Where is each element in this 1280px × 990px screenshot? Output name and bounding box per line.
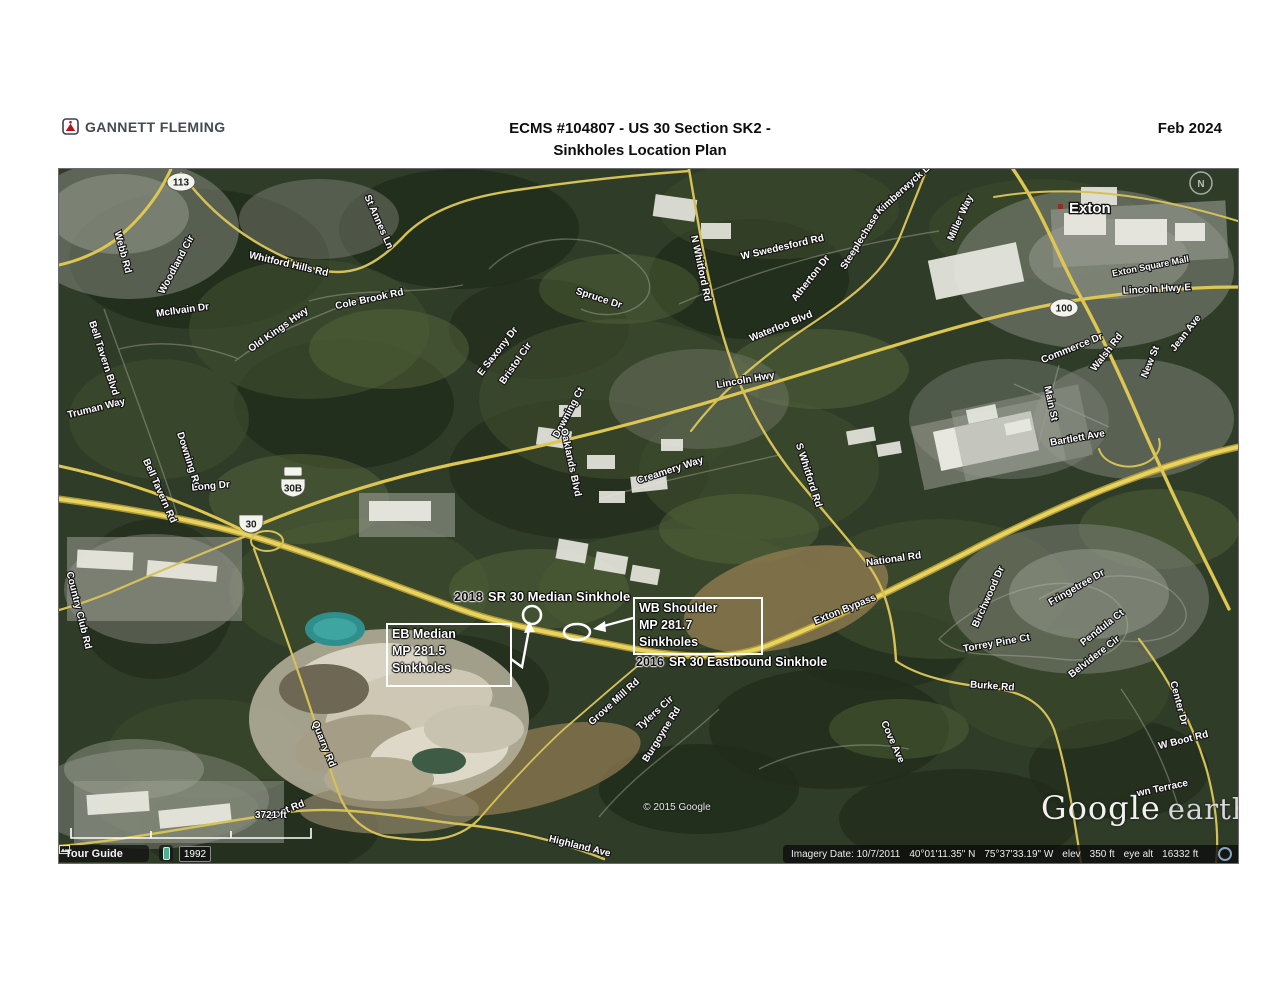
wb-box-line1: WB Shoulder [639,600,757,617]
logo-text: GANNETT FLEMING [85,119,226,135]
scale-label: 3721 ft [255,810,287,821]
page-title-line1: ECMS #104807 - US 30 Section SK2 - [340,118,940,140]
eb-median-callout-box: EB Median MP 281.5 Sinkholes [386,623,512,687]
tour-guide-button[interactable]: Tour Guide [59,845,149,862]
watermark-earth: earth [1168,792,1239,826]
gannett-fleming-logo-icon [62,118,79,135]
median-sinkhole-text: SR 30 Median Sinkhole [488,589,630,604]
median-sinkhole-year: 2018 [454,589,483,604]
route-shield-number: 100 [1056,304,1073,315]
route-shield-banner [284,467,302,476]
time-slider-year[interactable]: 1992 [179,846,211,862]
eye-alt-value: 16332 ft [1162,849,1198,860]
eastbound-sinkhole-text: SR 30 Eastbound Sinkhole [669,655,827,669]
eb-box-line2: MP 281.5 [392,643,506,660]
eye-alt-label: eye alt [1124,849,1153,860]
tour-guide-icon [59,845,70,854]
elev-value: 350 ft [1090,849,1115,860]
route-shield-number: 113 [173,178,190,189]
longitude-readout: 75°37'33.19" W [984,849,1053,860]
copyright-text: © 2015 Google [607,802,747,813]
eb-box-line3: Sinkholes [392,660,506,677]
eb-box-line1: EB Median [392,626,506,643]
wb-box-line3: Sinkholes [639,634,757,651]
city-label: Exton [1069,200,1111,217]
page-title: ECMS #104807 - US 30 Section SK2 - Sinkh… [340,118,940,162]
eastbound-sinkhole-year: 2016 [636,655,664,669]
status-bar: Imagery Date: 10/7/2011 40°01'11.35" N 7… [783,845,1238,863]
wb-shoulder-callout-box: WB Shoulder MP 281.7 Sinkholes [633,597,763,655]
google-earth-map-viewport[interactable]: Webb RdWoodland CirWhitford Hills RdMcIl… [58,168,1239,864]
quarry-pond-green [412,748,466,774]
navigation-circle-icon[interactable] [1218,847,1232,861]
imagery-date: Imagery Date: 10/7/2011 [791,849,900,860]
report-page: GANNETT FLEMING ECMS #104807 - US 30 Sec… [0,0,1280,990]
report-date: Feb 2024 [1158,120,1222,137]
gannett-fleming-logo: GANNETT FLEMING [62,118,226,135]
time-slider-handle[interactable] [159,845,173,861]
latitude-readout: 40°01'11.35" N [909,849,975,860]
eastbound-sinkhole-label: 2016SR 30 Eastbound Sinkhole [636,655,827,669]
route-shield-number: 30 [245,520,257,531]
median-sinkhole-label: 2018SR 30 Median Sinkhole [454,589,630,604]
wb-box-line2: MP 281.7 [639,617,757,634]
elev-label: elev [1062,849,1080,860]
page-title-line2: Sinkholes Location Plan [340,140,940,162]
watermark-google: Google [1041,789,1161,827]
tour-guide-label: Tour Guide [65,848,123,860]
route-shield-number: 30B [284,484,302,495]
satellite-map-canvas: Webb RdWoodland CirWhitford Hills RdMcIl… [59,169,1238,863]
svg-text:N: N [1197,179,1204,190]
google-earth-watermark: Googleearth [1041,789,1239,827]
